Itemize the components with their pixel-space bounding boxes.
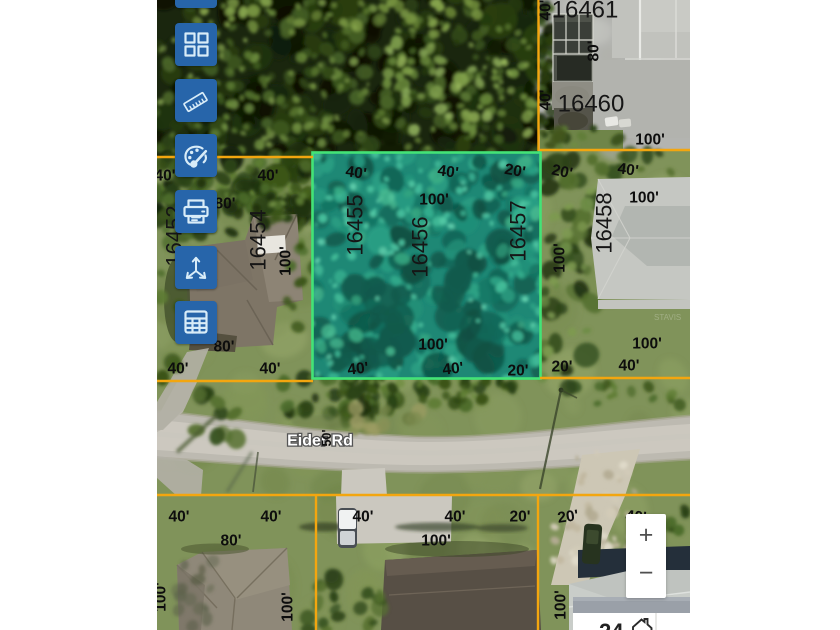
svg-text:100': 100' bbox=[421, 533, 451, 550]
svg-text:100': 100' bbox=[419, 192, 449, 209]
svg-text:16458: 16458 bbox=[592, 192, 617, 253]
svg-text:100': 100' bbox=[280, 592, 297, 622]
svg-text:40': 40' bbox=[442, 359, 465, 378]
svg-text:100': 100' bbox=[553, 590, 570, 620]
svg-text:80': 80' bbox=[221, 533, 242, 550]
svg-text:100': 100' bbox=[629, 190, 659, 207]
svg-text:40': 40' bbox=[168, 361, 189, 378]
svg-text:40': 40' bbox=[619, 358, 640, 375]
svg-text:16461: 16461 bbox=[552, 0, 619, 24]
svg-text:16454: 16454 bbox=[246, 209, 271, 270]
svg-text:20': 20' bbox=[508, 363, 529, 380]
svg-text:40': 40' bbox=[436, 162, 459, 182]
svg-text:20': 20' bbox=[556, 507, 579, 527]
svg-text:100': 100' bbox=[632, 336, 662, 353]
svg-text:24: 24 bbox=[599, 619, 624, 630]
svg-text:80': 80' bbox=[215, 196, 236, 213]
svg-text:20': 20' bbox=[503, 161, 527, 181]
svg-text:20': 20' bbox=[552, 359, 573, 376]
svg-text:40': 40' bbox=[538, 0, 555, 20]
svg-text:80': 80' bbox=[586, 41, 603, 62]
svg-text:40': 40' bbox=[616, 160, 639, 180]
svg-text:16456: 16456 bbox=[408, 216, 433, 277]
svg-text:40': 40' bbox=[260, 361, 281, 378]
svg-text:40': 40' bbox=[353, 509, 374, 526]
svg-text:40': 40' bbox=[258, 168, 279, 185]
svg-text:16460: 16460 bbox=[558, 91, 625, 118]
svg-text:40': 40' bbox=[169, 509, 190, 526]
svg-text:40': 40' bbox=[157, 168, 175, 185]
svg-text:40': 40' bbox=[261, 509, 282, 526]
svg-text:16457: 16457 bbox=[506, 200, 531, 261]
svg-text:40': 40' bbox=[344, 163, 367, 183]
svg-text:40': 40' bbox=[538, 90, 555, 111]
svg-text:40': 40' bbox=[445, 509, 466, 526]
svg-text:100': 100' bbox=[635, 132, 665, 149]
svg-text:STAVIS: STAVIS bbox=[654, 313, 681, 322]
svg-text:100': 100' bbox=[278, 246, 295, 276]
svg-text:100': 100' bbox=[157, 582, 170, 612]
svg-text:50': 50' bbox=[320, 430, 334, 447]
svg-text:100': 100' bbox=[418, 337, 448, 354]
svg-text:20': 20' bbox=[510, 509, 531, 526]
svg-text:40': 40' bbox=[347, 359, 370, 378]
svg-text:100': 100' bbox=[552, 243, 569, 273]
svg-text:16455: 16455 bbox=[343, 194, 368, 255]
